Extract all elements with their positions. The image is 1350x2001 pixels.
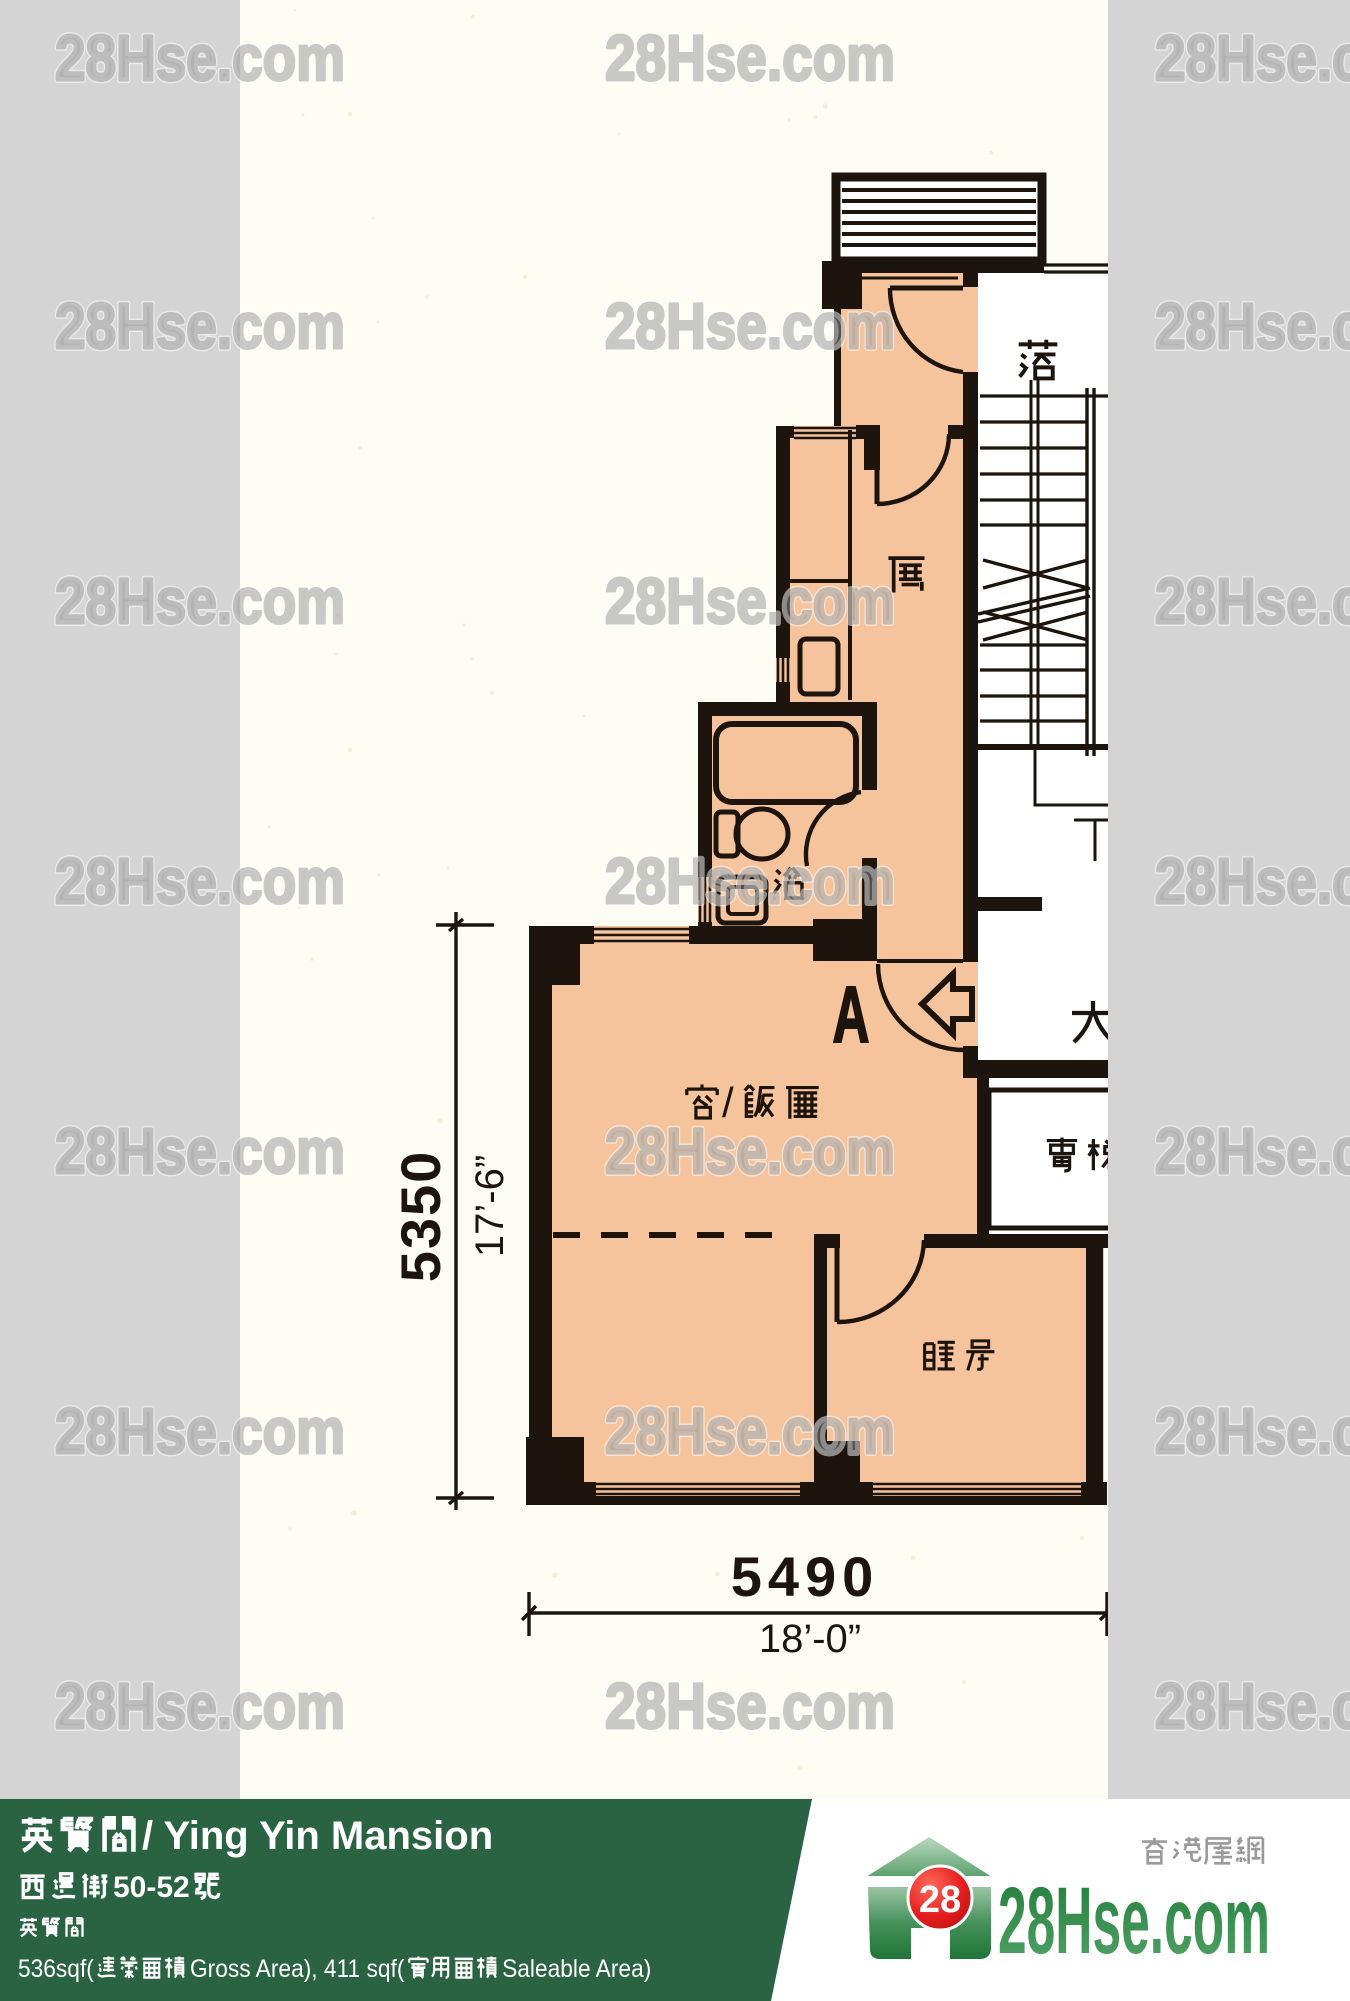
svg-text:28Hse.com: 28Hse.com [605,22,895,94]
svg-text:28Hse.com: 28Hse.com [1155,565,1350,637]
svg-text:28Hse.com: 28Hse.com [605,1395,895,1467]
svg-text:536sqf(: 536sqf( [18,1955,94,1983]
svg-text:28Hse.com: 28Hse.com [1155,290,1350,362]
svg-text:5350: 5350 [389,1150,452,1283]
svg-text:28Hse.com: 28Hse.com [1155,1395,1350,1467]
svg-text:18’-0”: 18’-0” [759,1617,861,1661]
svg-text:28Hse.com: 28Hse.com [605,290,895,362]
svg-text:28Hse.com: 28Hse.com [605,1670,895,1742]
svg-text:28Hse.com: 28Hse.com [1155,845,1350,917]
svg-text:Gross Area), 411 sqf(: Gross Area), 411 sqf( [190,1955,404,1983]
svg-text:28Hse.com: 28Hse.com [605,845,895,917]
svg-text:28Hse.com: 28Hse.com [55,565,345,637]
svg-text:28Hse.com: 28Hse.com [605,565,895,637]
svg-text:28Hse.com: 28Hse.com [998,1868,1270,1974]
svg-text:28Hse.com: 28Hse.com [55,845,345,917]
svg-text:28Hse.com: 28Hse.com [55,22,345,94]
svg-text:28Hse.com: 28Hse.com [55,1395,345,1467]
svg-text:28Hse.com: 28Hse.com [1155,22,1350,94]
svg-text:28Hse.com: 28Hse.com [605,1115,895,1187]
svg-text:28Hse.com: 28Hse.com [55,290,345,362]
svg-text:Saleable Area): Saleable Area) [502,1955,651,1983]
svg-text:A: A [833,971,870,1060]
svg-text:/ Ying Yin Mansion: / Ying Yin Mansion [142,1814,493,1858]
svg-text:50-52: 50-52 [113,1871,190,1904]
svg-text:28: 28 [919,1879,961,1921]
svg-text:5490: 5490 [731,1545,880,1608]
svg-text:28Hse.com: 28Hse.com [1155,1115,1350,1187]
svg-text:28Hse.com: 28Hse.com [55,1670,345,1742]
svg-text:28Hse.com: 28Hse.com [55,1115,345,1187]
svg-text:17’-6”: 17’-6” [468,1155,512,1257]
svg-text:28Hse.com: 28Hse.com [1155,1670,1350,1742]
